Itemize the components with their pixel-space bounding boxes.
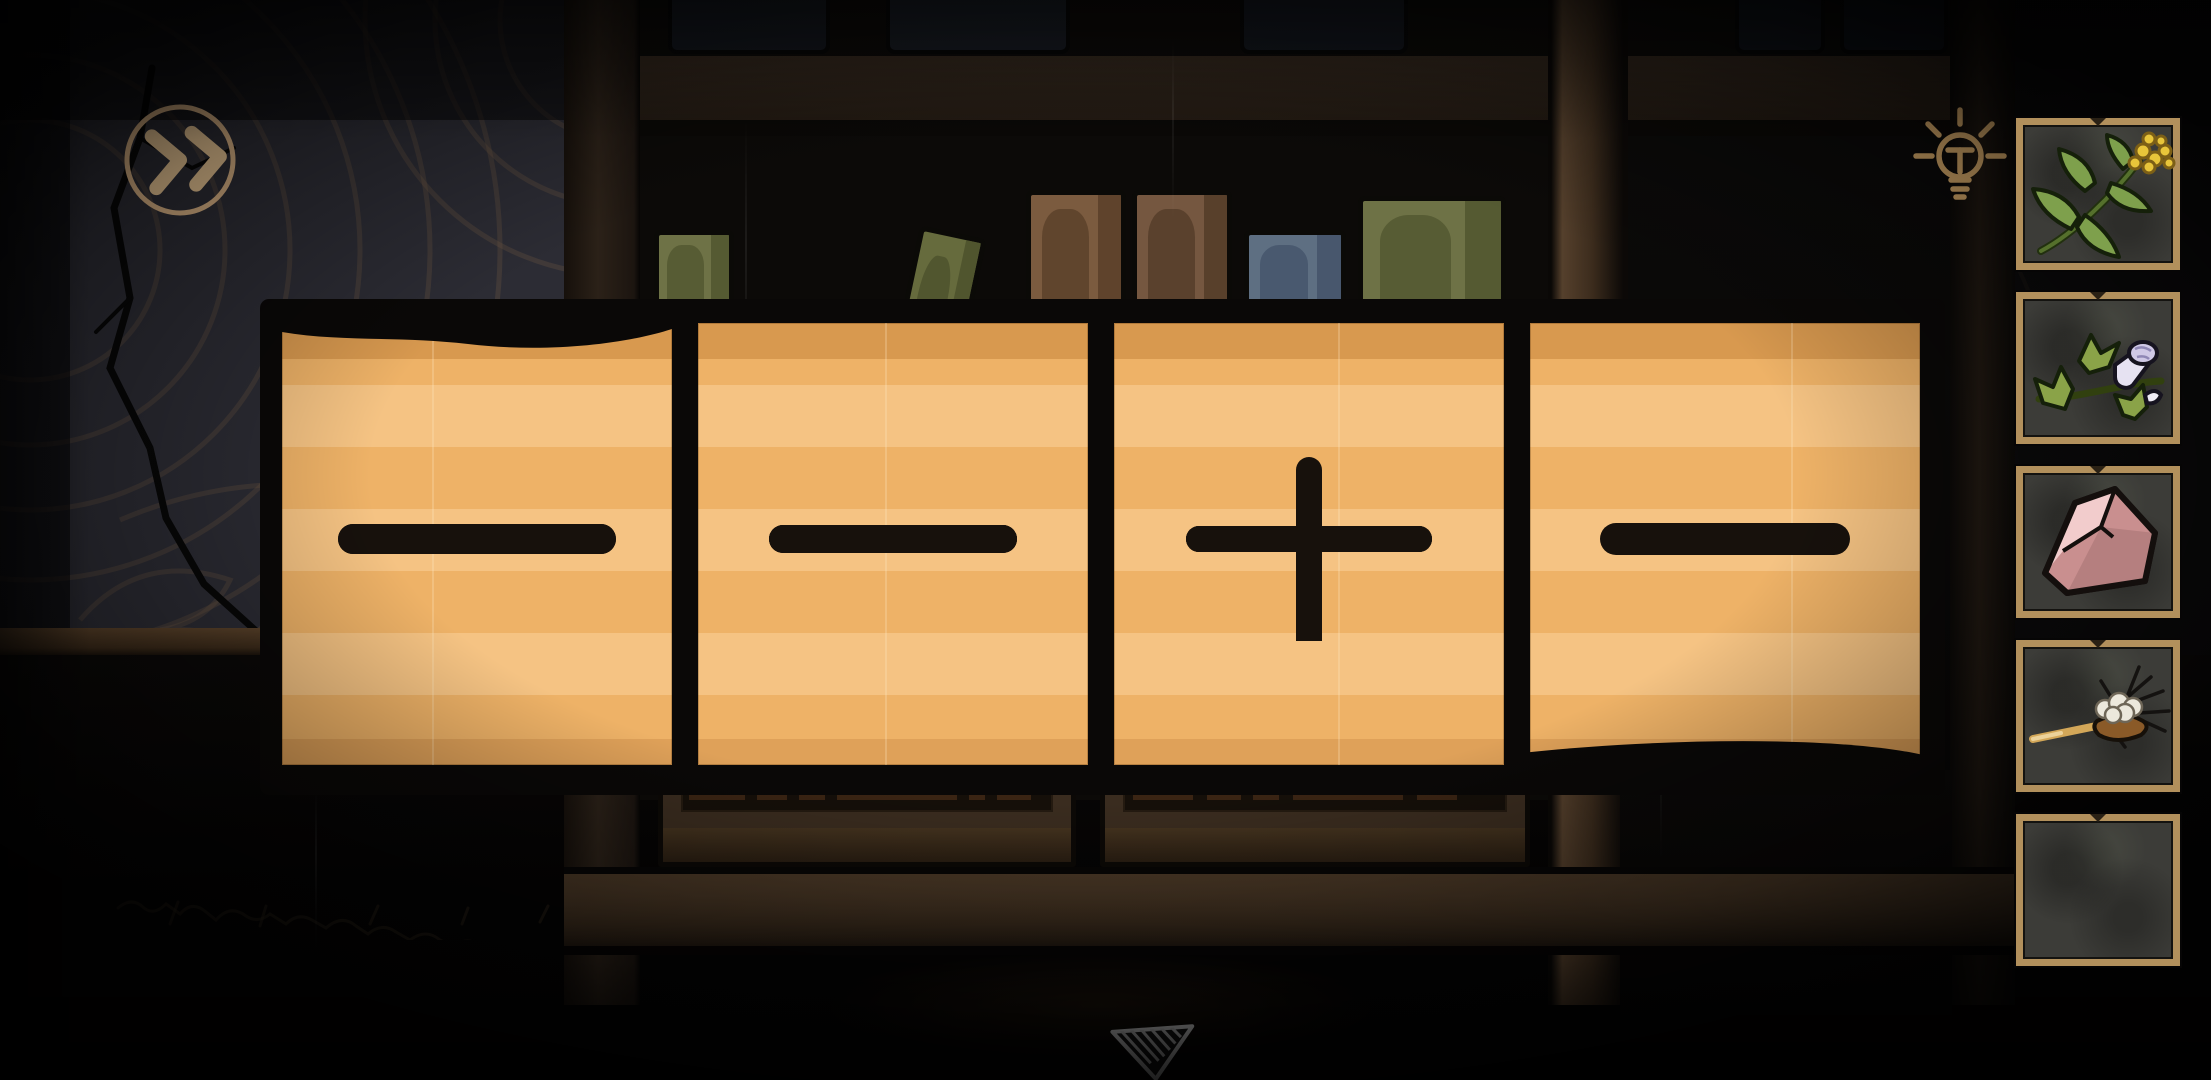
yellow-flower-sprig-icon bbox=[2027, 129, 2177, 267]
card-3-vertical-stem-over-three-bars[interactable] bbox=[1114, 323, 1504, 765]
symbol-two-horizontal-bars bbox=[282, 318, 672, 760]
down-triangle-icon bbox=[1106, 1023, 1201, 1080]
symbol-one-horizontal-bar bbox=[1530, 318, 1920, 760]
bookshelf-base bbox=[564, 867, 2015, 955]
symbol-three-horizontal-bars bbox=[698, 318, 1088, 760]
shadowed-book-top bbox=[1240, 0, 1408, 54]
scratch-mark bbox=[1172, 40, 1174, 220]
scroll-down-arrow-button[interactable] bbox=[1058, 992, 1153, 1054]
lightbulb-hint-icon bbox=[1908, 100, 2013, 215]
inventory-slot-5-empty[interactable] bbox=[2016, 814, 2180, 966]
hint-button[interactable] bbox=[1855, 42, 1960, 157]
card-4-one-horizontal-bar[interactable] bbox=[1530, 323, 1920, 765]
card-2-three-horizontal-bars[interactable] bbox=[698, 323, 1088, 765]
inventory-slot-4-dried-root-on-stick[interactable] bbox=[2016, 640, 2180, 792]
shadowed-book-top bbox=[668, 0, 830, 54]
inventory-slot-1-yellow-flower-sprig[interactable] bbox=[2016, 118, 2180, 270]
card-1-two-horizontal-bars[interactable] bbox=[282, 323, 672, 765]
double-chevron-right-icon bbox=[118, 98, 243, 223]
fast-forward-button[interactable] bbox=[55, 35, 180, 160]
dried-root-on-stick-icon bbox=[2027, 651, 2177, 789]
symbol-vertical-stem-over-three-bars bbox=[1114, 318, 1504, 760]
pink-rock-icon bbox=[2027, 477, 2177, 615]
card-strip bbox=[260, 299, 1945, 795]
white-trumpet-flower-icon bbox=[2027, 303, 2177, 441]
inventory-bar bbox=[2016, 112, 2184, 982]
scratch-mark bbox=[315, 790, 317, 950]
inventory-slot-3-pink-rock[interactable] bbox=[2016, 466, 2180, 618]
bookshelf-top-board bbox=[564, 56, 2015, 136]
game-screen bbox=[0, 0, 2211, 1080]
inventory-slot-2-white-trumpet-flower-sprig[interactable] bbox=[2016, 292, 2180, 444]
shadowed-book-top bbox=[886, 0, 1070, 54]
shadowed-book-top bbox=[1735, 0, 1825, 54]
faded-scribbles bbox=[110, 880, 590, 940]
